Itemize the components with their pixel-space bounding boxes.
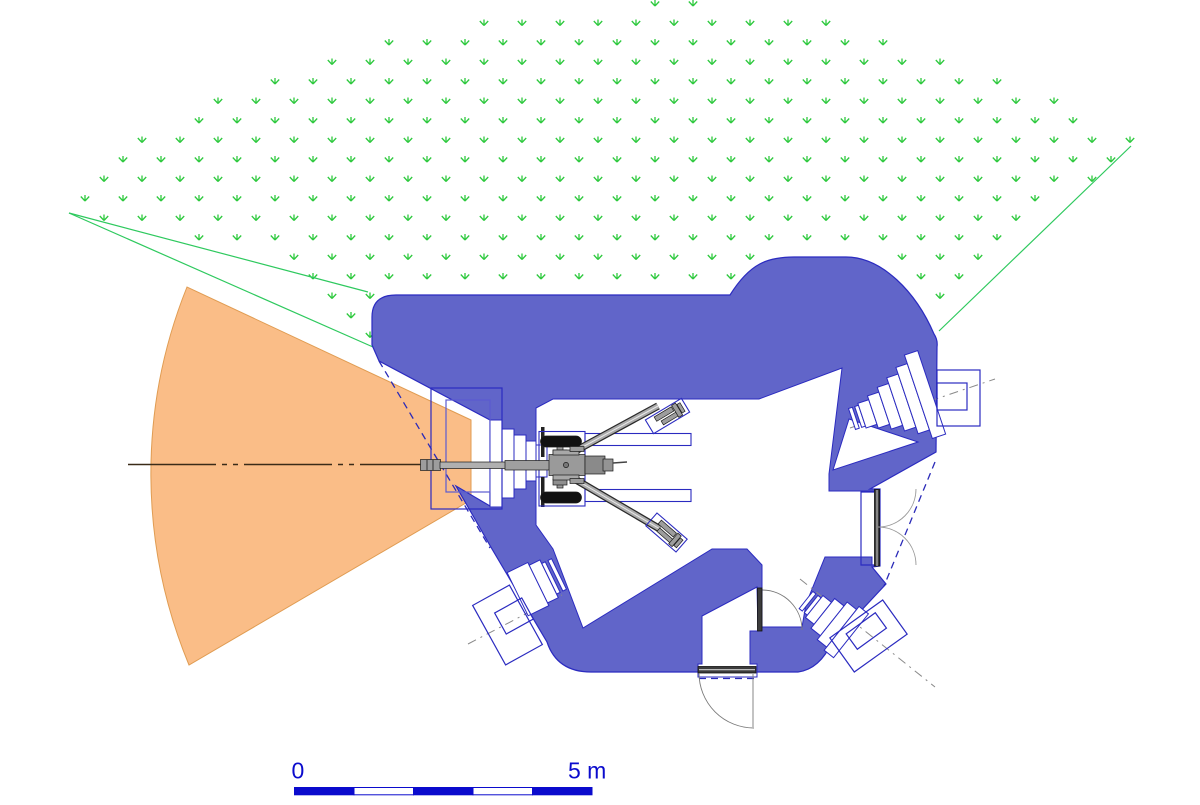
svg-text:5 m: 5 m (568, 758, 606, 784)
svg-text:0: 0 (292, 758, 305, 784)
